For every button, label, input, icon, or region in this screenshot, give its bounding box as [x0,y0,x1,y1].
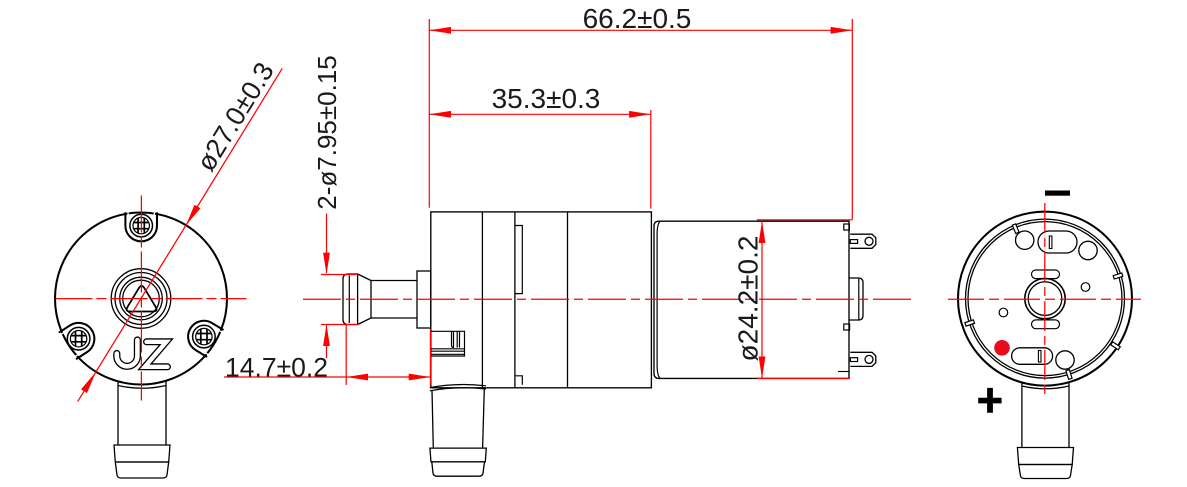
svg-text:35.3±0.3: 35.3±0.3 [492,83,601,114]
svg-text:14.7±0.2: 14.7±0.2 [225,353,328,383]
svg-text:66.2±0.5: 66.2±0.5 [583,3,692,34]
svg-text:ø24.2±0.2: ø24.2±0.2 [733,236,764,362]
svg-text:ø27.0±0.3: ø27.0±0.3 [191,57,280,176]
svg-text:2-ø7.95±0.15: 2-ø7.95±0.15 [312,55,342,209]
